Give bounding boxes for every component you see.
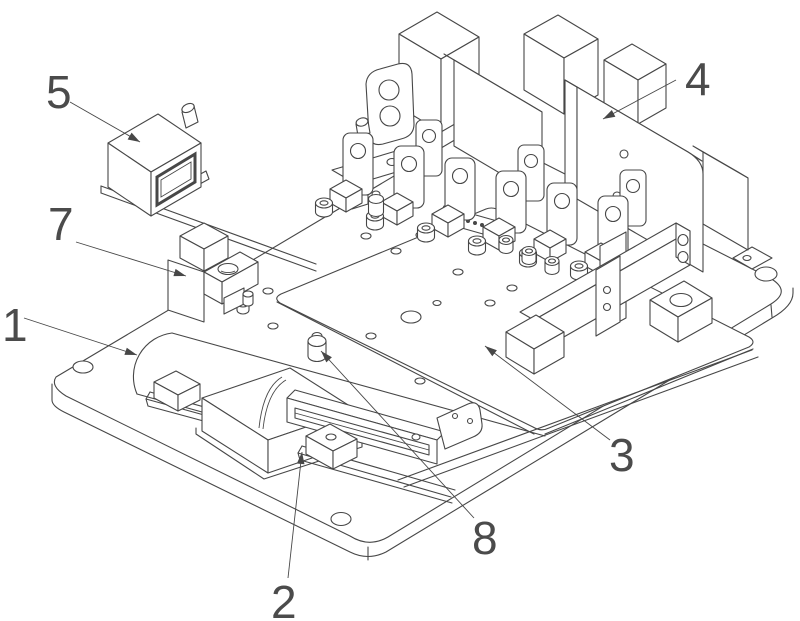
sensor-box-5 bbox=[108, 102, 209, 216]
callout-label-1: 1 bbox=[2, 299, 28, 351]
corner-hole bbox=[73, 361, 93, 373]
callout-leader-5 bbox=[70, 102, 140, 142]
callout-5: 5 bbox=[46, 66, 140, 142]
callout-label-5: 5 bbox=[46, 66, 72, 118]
corner-hole bbox=[331, 513, 351, 526]
callout-label-2: 2 bbox=[271, 576, 297, 621]
corner-hole bbox=[755, 267, 777, 281]
cylinder-body bbox=[355, 63, 414, 144]
callout-leader-1 bbox=[24, 318, 137, 355]
callout-label-3: 3 bbox=[609, 429, 635, 481]
callout-label-4: 4 bbox=[685, 53, 711, 105]
callout-label-7: 7 bbox=[48, 198, 74, 250]
callout-label-8: 8 bbox=[472, 512, 498, 564]
figure-canvas: 1 2 3 4 5 7 8 bbox=[0, 0, 800, 621]
patent-figure-drawing: 1 2 3 4 5 7 8 bbox=[0, 0, 800, 621]
callout-leader-7 bbox=[76, 242, 186, 276]
